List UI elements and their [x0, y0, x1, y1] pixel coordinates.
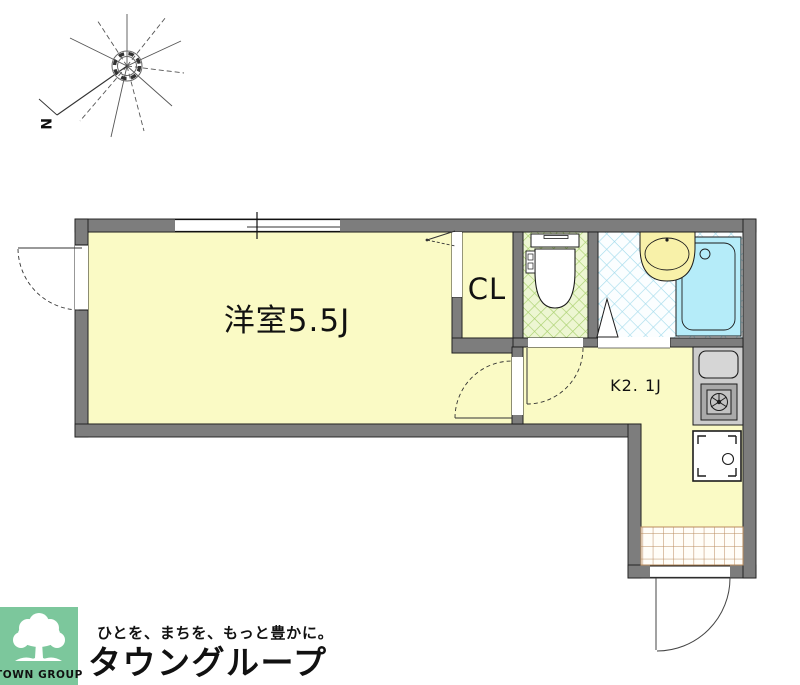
bath-threshold — [598, 337, 670, 348]
washing-machine-icon — [693, 431, 741, 481]
room-label-closet: CL — [468, 272, 506, 306]
room-label-living: 洋室5.5J — [224, 303, 350, 339]
balcony-door-swing — [18, 248, 82, 310]
logo-tagline: ひとを、まちを、もっと豊かに。 — [97, 624, 334, 642]
logo-text: TOWN GROUP — [0, 669, 83, 681]
room-label-kitchen: K2. 1J — [610, 376, 662, 395]
washbasin-icon — [640, 232, 695, 281]
floorplan-canvas: N — [0, 0, 800, 685]
entrance-door-swing — [656, 578, 730, 651]
toilet-doorway — [528, 338, 583, 347]
compass-north-label: N — [37, 118, 53, 130]
balcony-door-opening — [75, 245, 88, 310]
compass-rose — [39, 14, 184, 137]
gas-stove-icon — [701, 384, 737, 420]
kitchen-doorway — [512, 357, 523, 415]
kitchen-sink-icon — [699, 351, 738, 378]
logo-mark: TOWN GROUP — [0, 607, 83, 685]
logo-company: タウングループ — [88, 643, 328, 682]
closet-door-opening — [452, 232, 462, 297]
entrance-tiles — [641, 527, 743, 565]
floorplan-page: N — [0, 0, 800, 685]
entrance-threshold — [650, 565, 730, 578]
